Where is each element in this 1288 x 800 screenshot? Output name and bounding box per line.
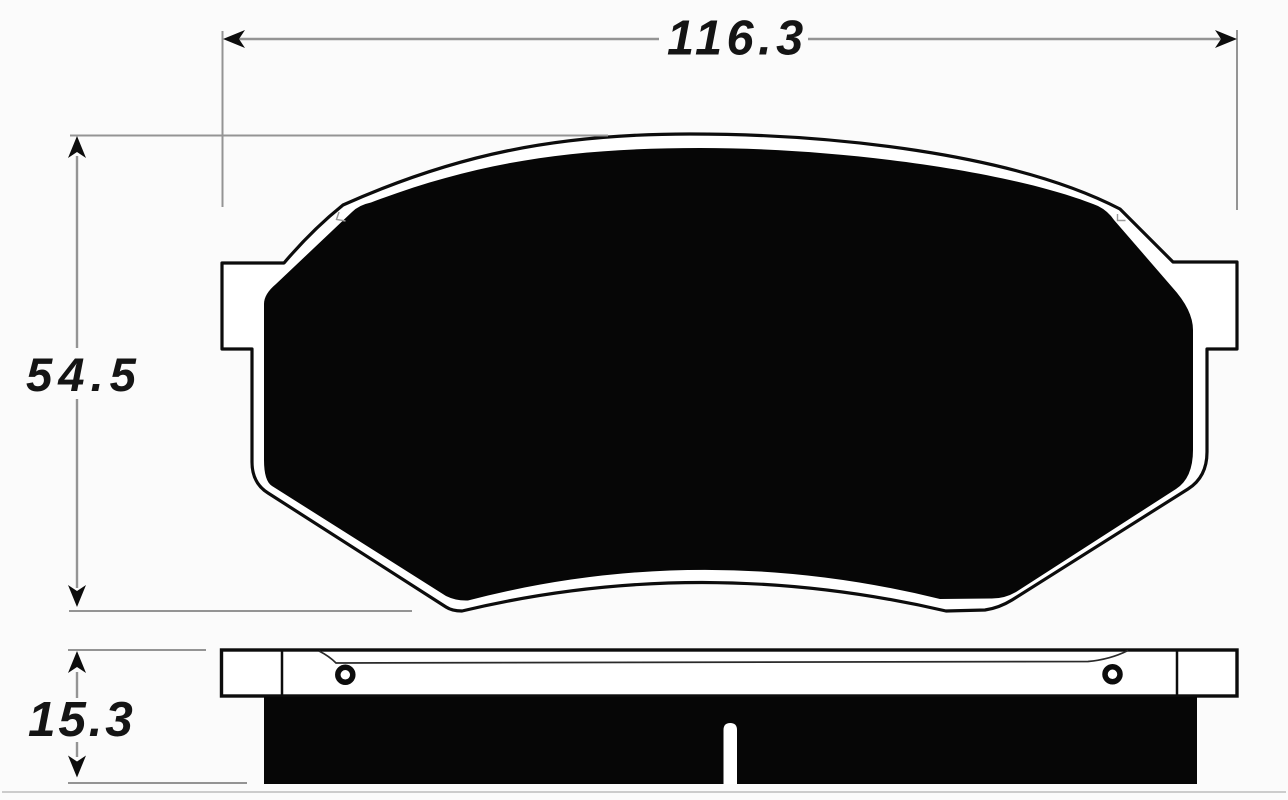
svg-text:15.3: 15.3 [28,692,136,747]
svg-text:54.5: 54.5 [26,349,142,402]
svg-text:116.3: 116.3 [667,12,808,66]
